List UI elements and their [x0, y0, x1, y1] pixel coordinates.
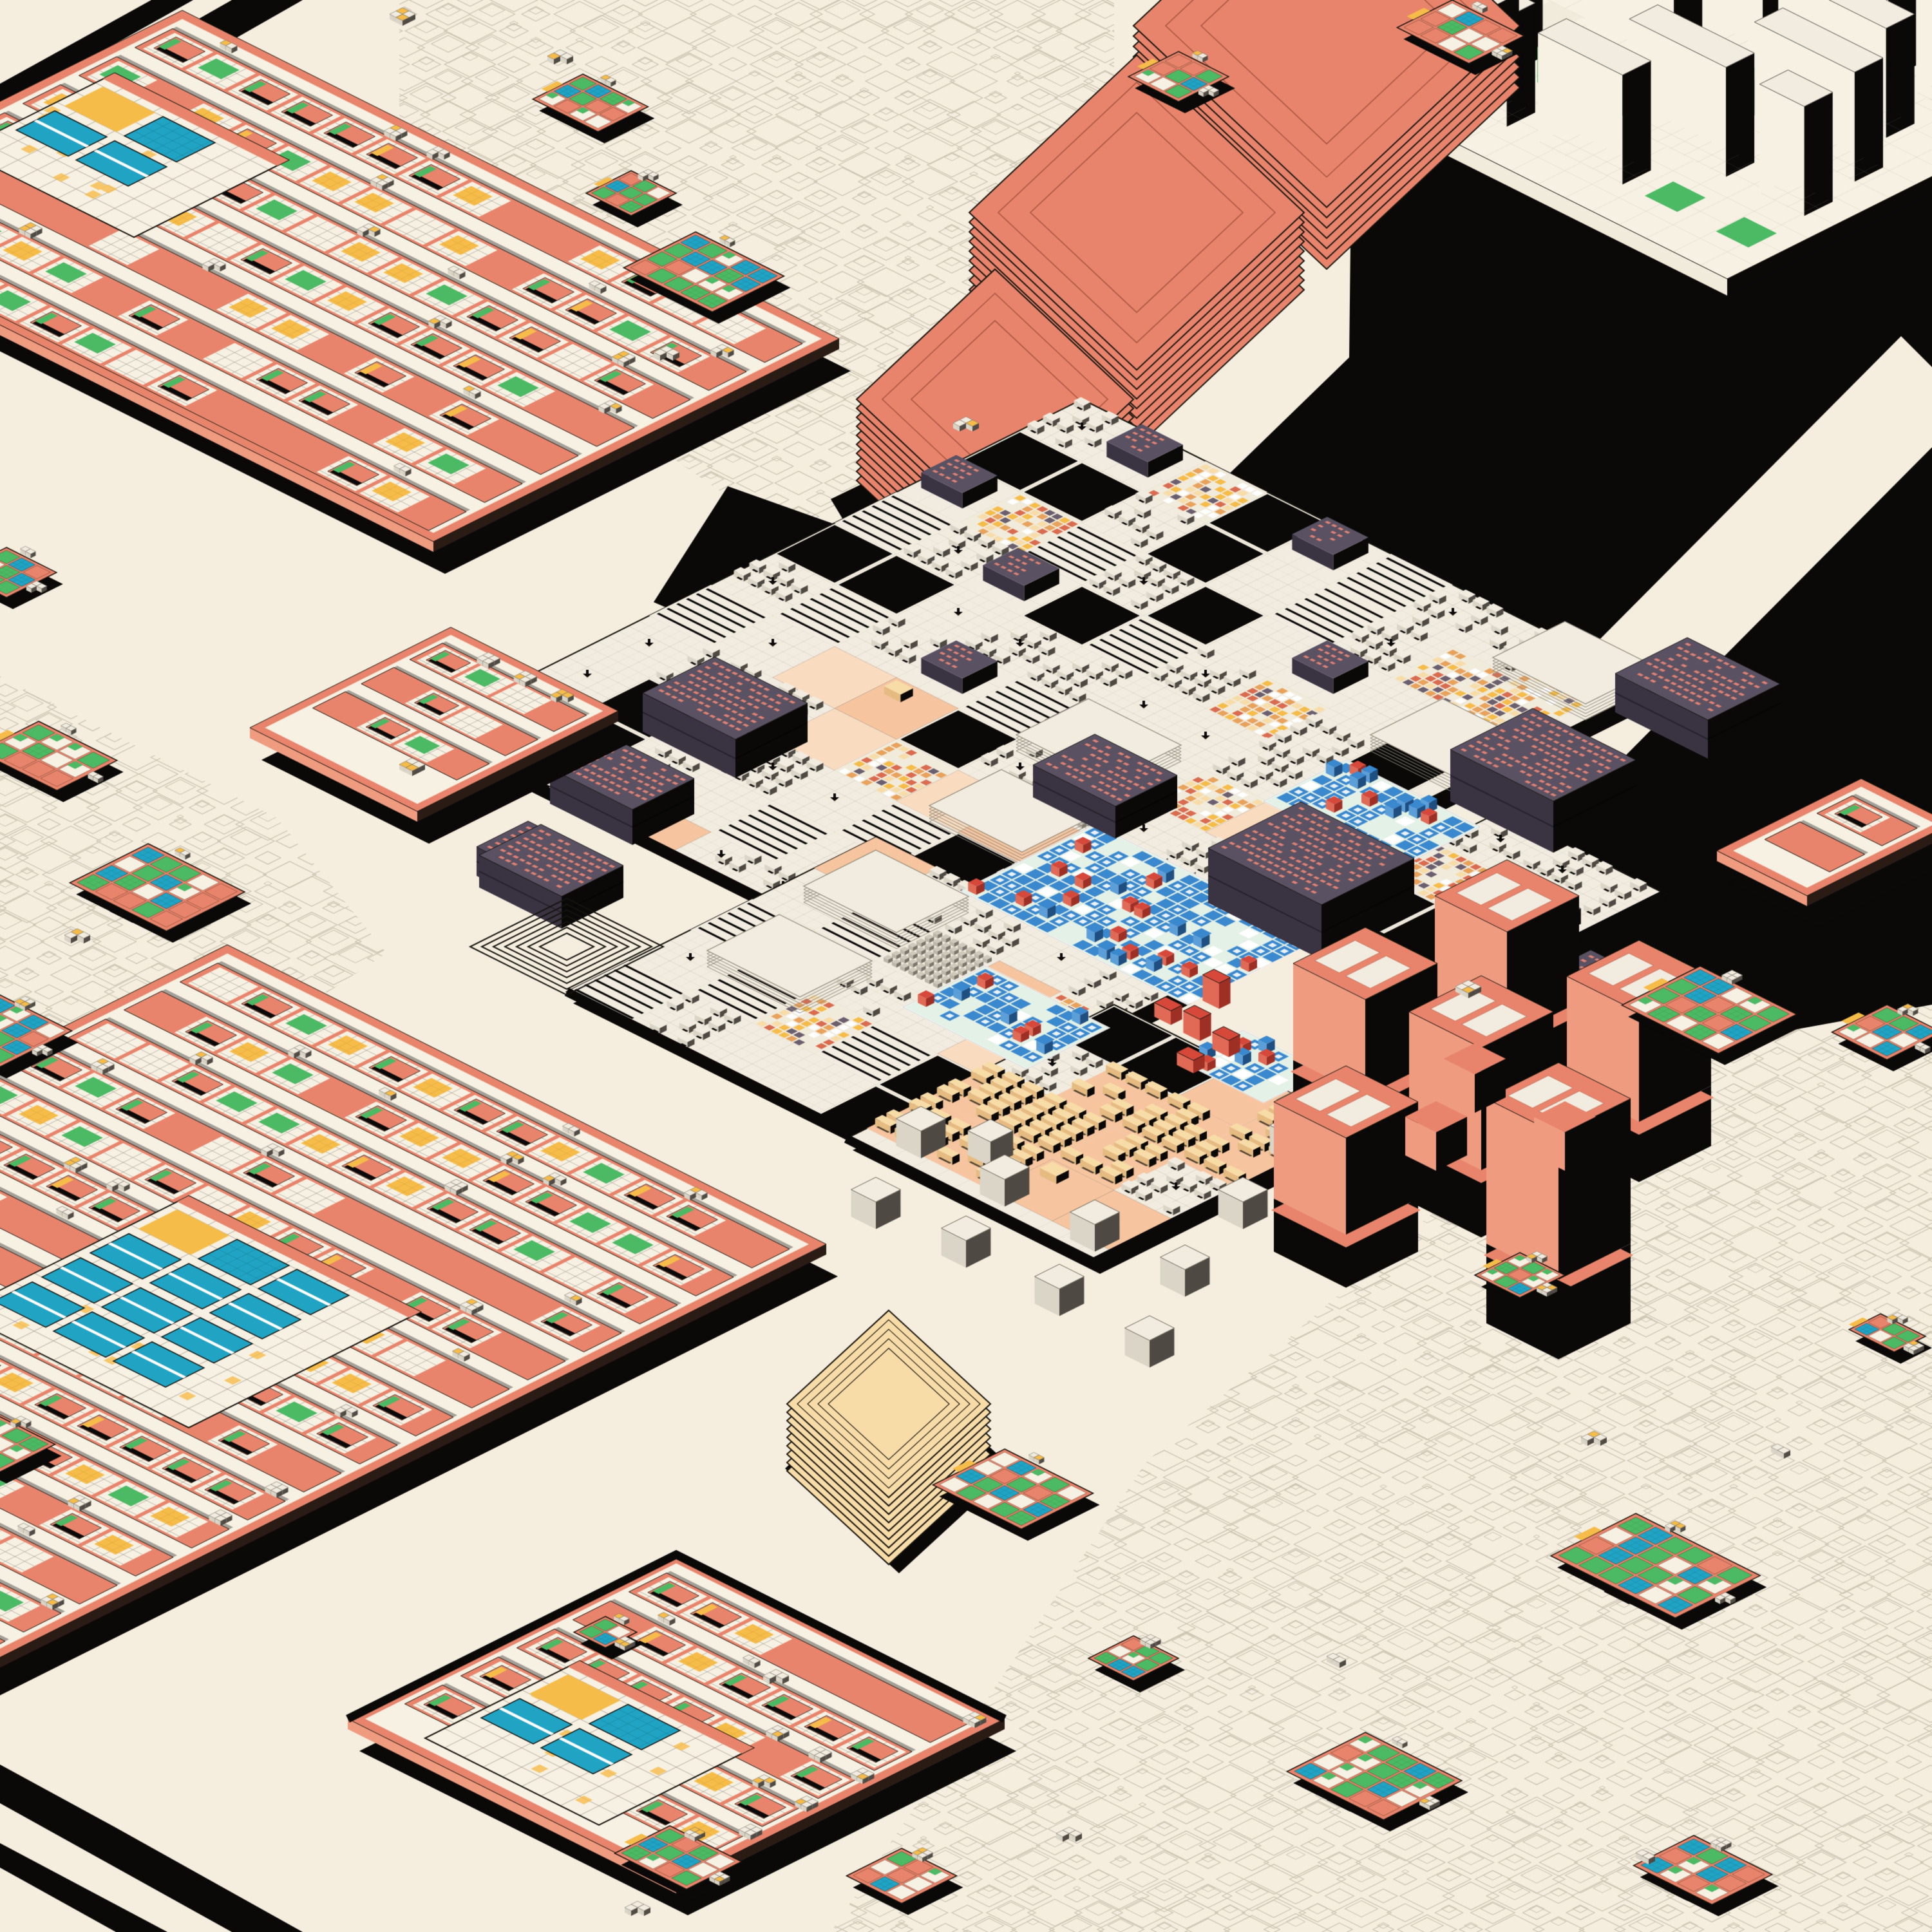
generative-isometric-art-canvas: [0, 0, 1932, 1932]
